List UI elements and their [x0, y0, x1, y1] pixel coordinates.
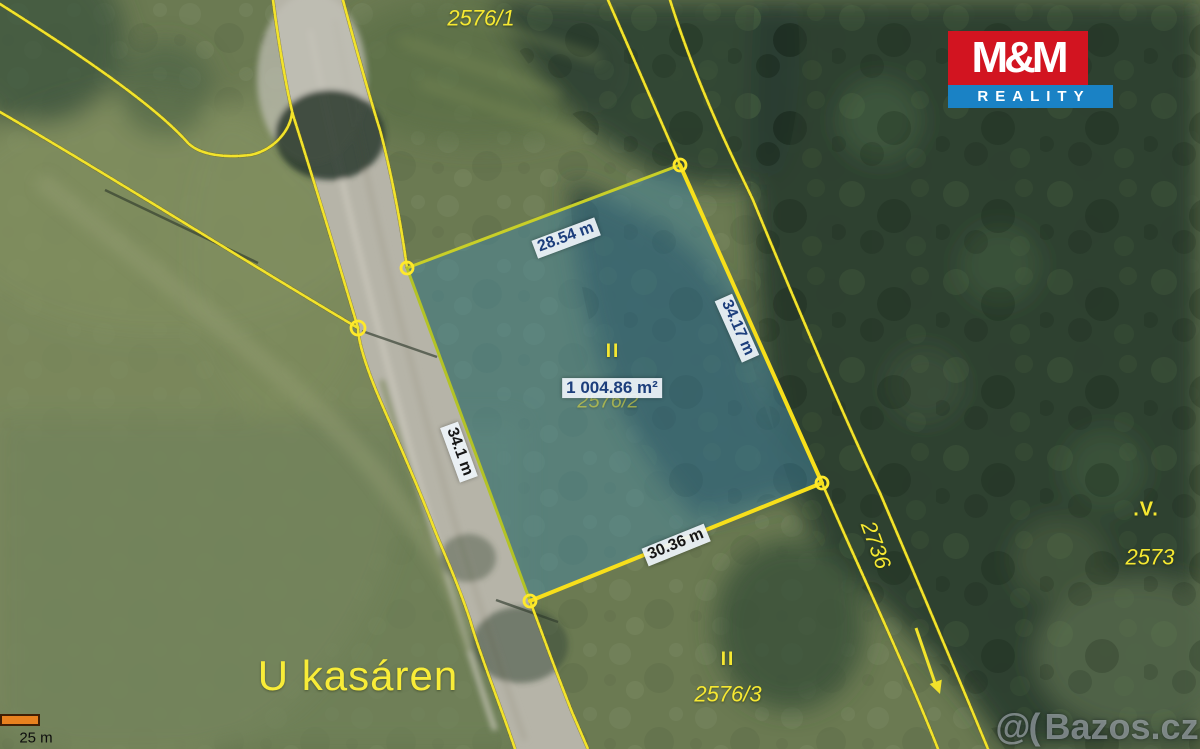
culture-marker-bottom: II	[721, 650, 736, 670]
parcel-number-2576-3: 2576/3	[694, 682, 761, 705]
map-symbol-v: .V.	[1133, 500, 1159, 521]
parcel-number-2573: 2573	[1126, 545, 1175, 568]
scale-bar	[0, 714, 40, 726]
site-watermark: @(Bazos.cz	[995, 706, 1198, 748]
street-name-label: U kasáren	[258, 654, 458, 698]
scale-bar-label: 25 m	[19, 730, 52, 747]
watermark-at-icon: @(	[995, 706, 1038, 747]
agency-logo-title: M&M	[971, 33, 1064, 83]
watermark-domain: Bazos.cz	[1045, 706, 1199, 747]
agency-logo-subtitle-bar: REALITY	[948, 85, 1113, 108]
aerial-cadastral-map: 2576/1 2576/2 II 28.54 m 34.17 m 34.1 m …	[0, 0, 1200, 749]
agency-logo: M&M	[948, 31, 1088, 85]
parcel-number-2576-1: 2576/1	[447, 6, 514, 29]
map-canvas	[0, 0, 1200, 749]
culture-marker-selected: II	[606, 342, 621, 362]
agency-logo-subtitle: REALITY	[970, 88, 1090, 105]
measurement-area: 1 004.86 m²	[562, 378, 662, 398]
